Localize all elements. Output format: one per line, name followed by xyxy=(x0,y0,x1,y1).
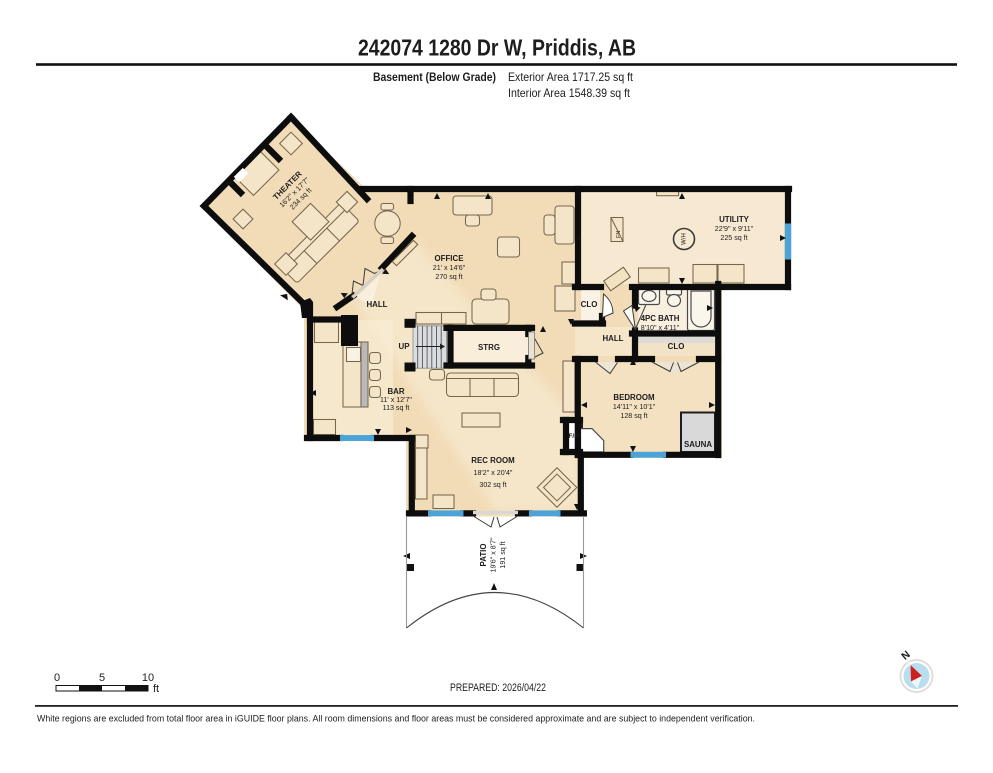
svg-text:HALL: HALL xyxy=(602,334,623,343)
svg-text:14'11" x 10'1": 14'11" x 10'1" xyxy=(613,403,656,411)
svg-text:CLO: CLO xyxy=(668,342,685,351)
svg-text:STRG: STRG xyxy=(478,343,500,352)
svg-text:Exterior Area 1717.25 sq ft: Exterior Area 1717.25 sq ft xyxy=(508,70,634,84)
svg-text:242074 1280 Dr W, Priddis, AB: 242074 1280 Dr W, Priddis, AB xyxy=(358,35,636,61)
svg-text:BAR: BAR xyxy=(387,387,404,396)
svg-text:HALL: HALL xyxy=(366,300,387,309)
svg-text:PATIO: PATIO xyxy=(479,544,488,567)
svg-text:225 sq ft: 225 sq ft xyxy=(720,234,747,242)
svg-text:22'9" x 9'11": 22'9" x 9'11" xyxy=(715,225,754,233)
svg-text:SAUNA: SAUNA xyxy=(684,440,712,449)
svg-text:8'10" x 4'11": 8'10" x 4'11" xyxy=(641,324,680,332)
svg-text:PREPARED: 2026/04/22: PREPARED: 2026/04/22 xyxy=(450,682,546,694)
svg-text:Basement (Below Grade): Basement (Below Grade) xyxy=(373,70,496,84)
svg-text:18'2" x 20'4": 18'2" x 20'4" xyxy=(474,469,513,477)
svg-text:113 sq ft: 113 sq ft xyxy=(383,404,410,412)
svg-text:5: 5 xyxy=(99,672,105,684)
svg-text:OFFICE: OFFICE xyxy=(435,254,464,263)
svg-text:19'6" x 8'7": 19'6" x 8'7" xyxy=(490,537,498,572)
svg-text:White regions are excluded fro: White regions are excluded from total fl… xyxy=(37,714,755,725)
svg-text:191 sq ft: 191 sq ft xyxy=(499,541,507,568)
svg-text:UTILITY: UTILITY xyxy=(719,215,750,224)
svg-text:F/P: F/P xyxy=(569,433,580,440)
svg-text:ft: ft xyxy=(153,683,159,695)
svg-text:W/H: W/H xyxy=(682,233,688,245)
svg-text:302 sq ft: 302 sq ft xyxy=(479,481,506,489)
svg-text:11' x 12'7": 11' x 12'7" xyxy=(380,396,412,404)
svg-text:FN: FN xyxy=(616,231,622,238)
svg-text:Interior Area 1548.39 sq ft: Interior Area 1548.39 sq ft xyxy=(508,86,631,100)
svg-text:CLO: CLO xyxy=(581,300,598,309)
svg-text:128 sq ft: 128 sq ft xyxy=(620,412,647,420)
svg-text:BEDROOM: BEDROOM xyxy=(613,393,655,402)
svg-text:UP: UP xyxy=(399,342,410,351)
svg-text:21' x 14'6": 21' x 14'6" xyxy=(433,264,466,272)
svg-text:0: 0 xyxy=(54,672,60,684)
svg-text:REC ROOM: REC ROOM xyxy=(471,456,515,465)
svg-text:4PC BATH: 4PC BATH xyxy=(641,314,680,323)
svg-text:270 sq ft: 270 sq ft xyxy=(435,273,462,281)
